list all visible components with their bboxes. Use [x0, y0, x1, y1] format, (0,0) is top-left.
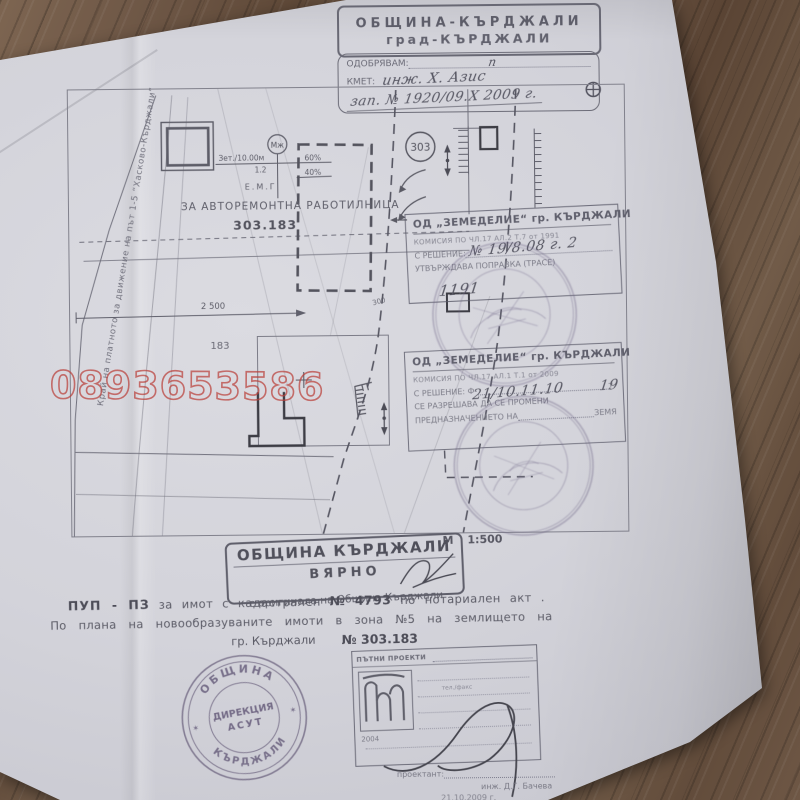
designer-signature [375, 666, 566, 800]
plot-number: № 303.183 [341, 631, 418, 647]
desc-end: по нотариален акт . [400, 590, 545, 607]
photographed-document-scene: ОБЩИНА-КЪРДЖАЛИ град-КЪРДЖАЛИ ОДОБРЯВАМ:… [0, 0, 800, 800]
designer-date: 21.10.2009 г. [441, 793, 496, 800]
seal-star-right: ✶ [289, 705, 297, 715]
seal-star-left: ✶ [192, 723, 200, 733]
designer-label: проектант: [397, 770, 444, 779]
cadastral-number: № 4793 [330, 592, 392, 608]
desc-mid: за имот с кадастрален [159, 595, 321, 612]
designer-name: инж. Д.Г. Бачева [481, 781, 552, 791]
designer-row: проектант: [397, 767, 555, 779]
company-name: ПЪТНИ ПРОЕКТИ [356, 653, 426, 664]
dotted-line [432, 648, 533, 662]
phone-watermark: 0893653586 [50, 363, 325, 409]
municipality-round-seal: ОБЩИНА КЪРДЖАЛИ ДИРЕКЦИЯ АСУТ ✶ ✶ [167, 641, 321, 795]
pup-pz-label: ПУП - ПЗ [68, 597, 150, 614]
dotted-line [444, 767, 555, 778]
